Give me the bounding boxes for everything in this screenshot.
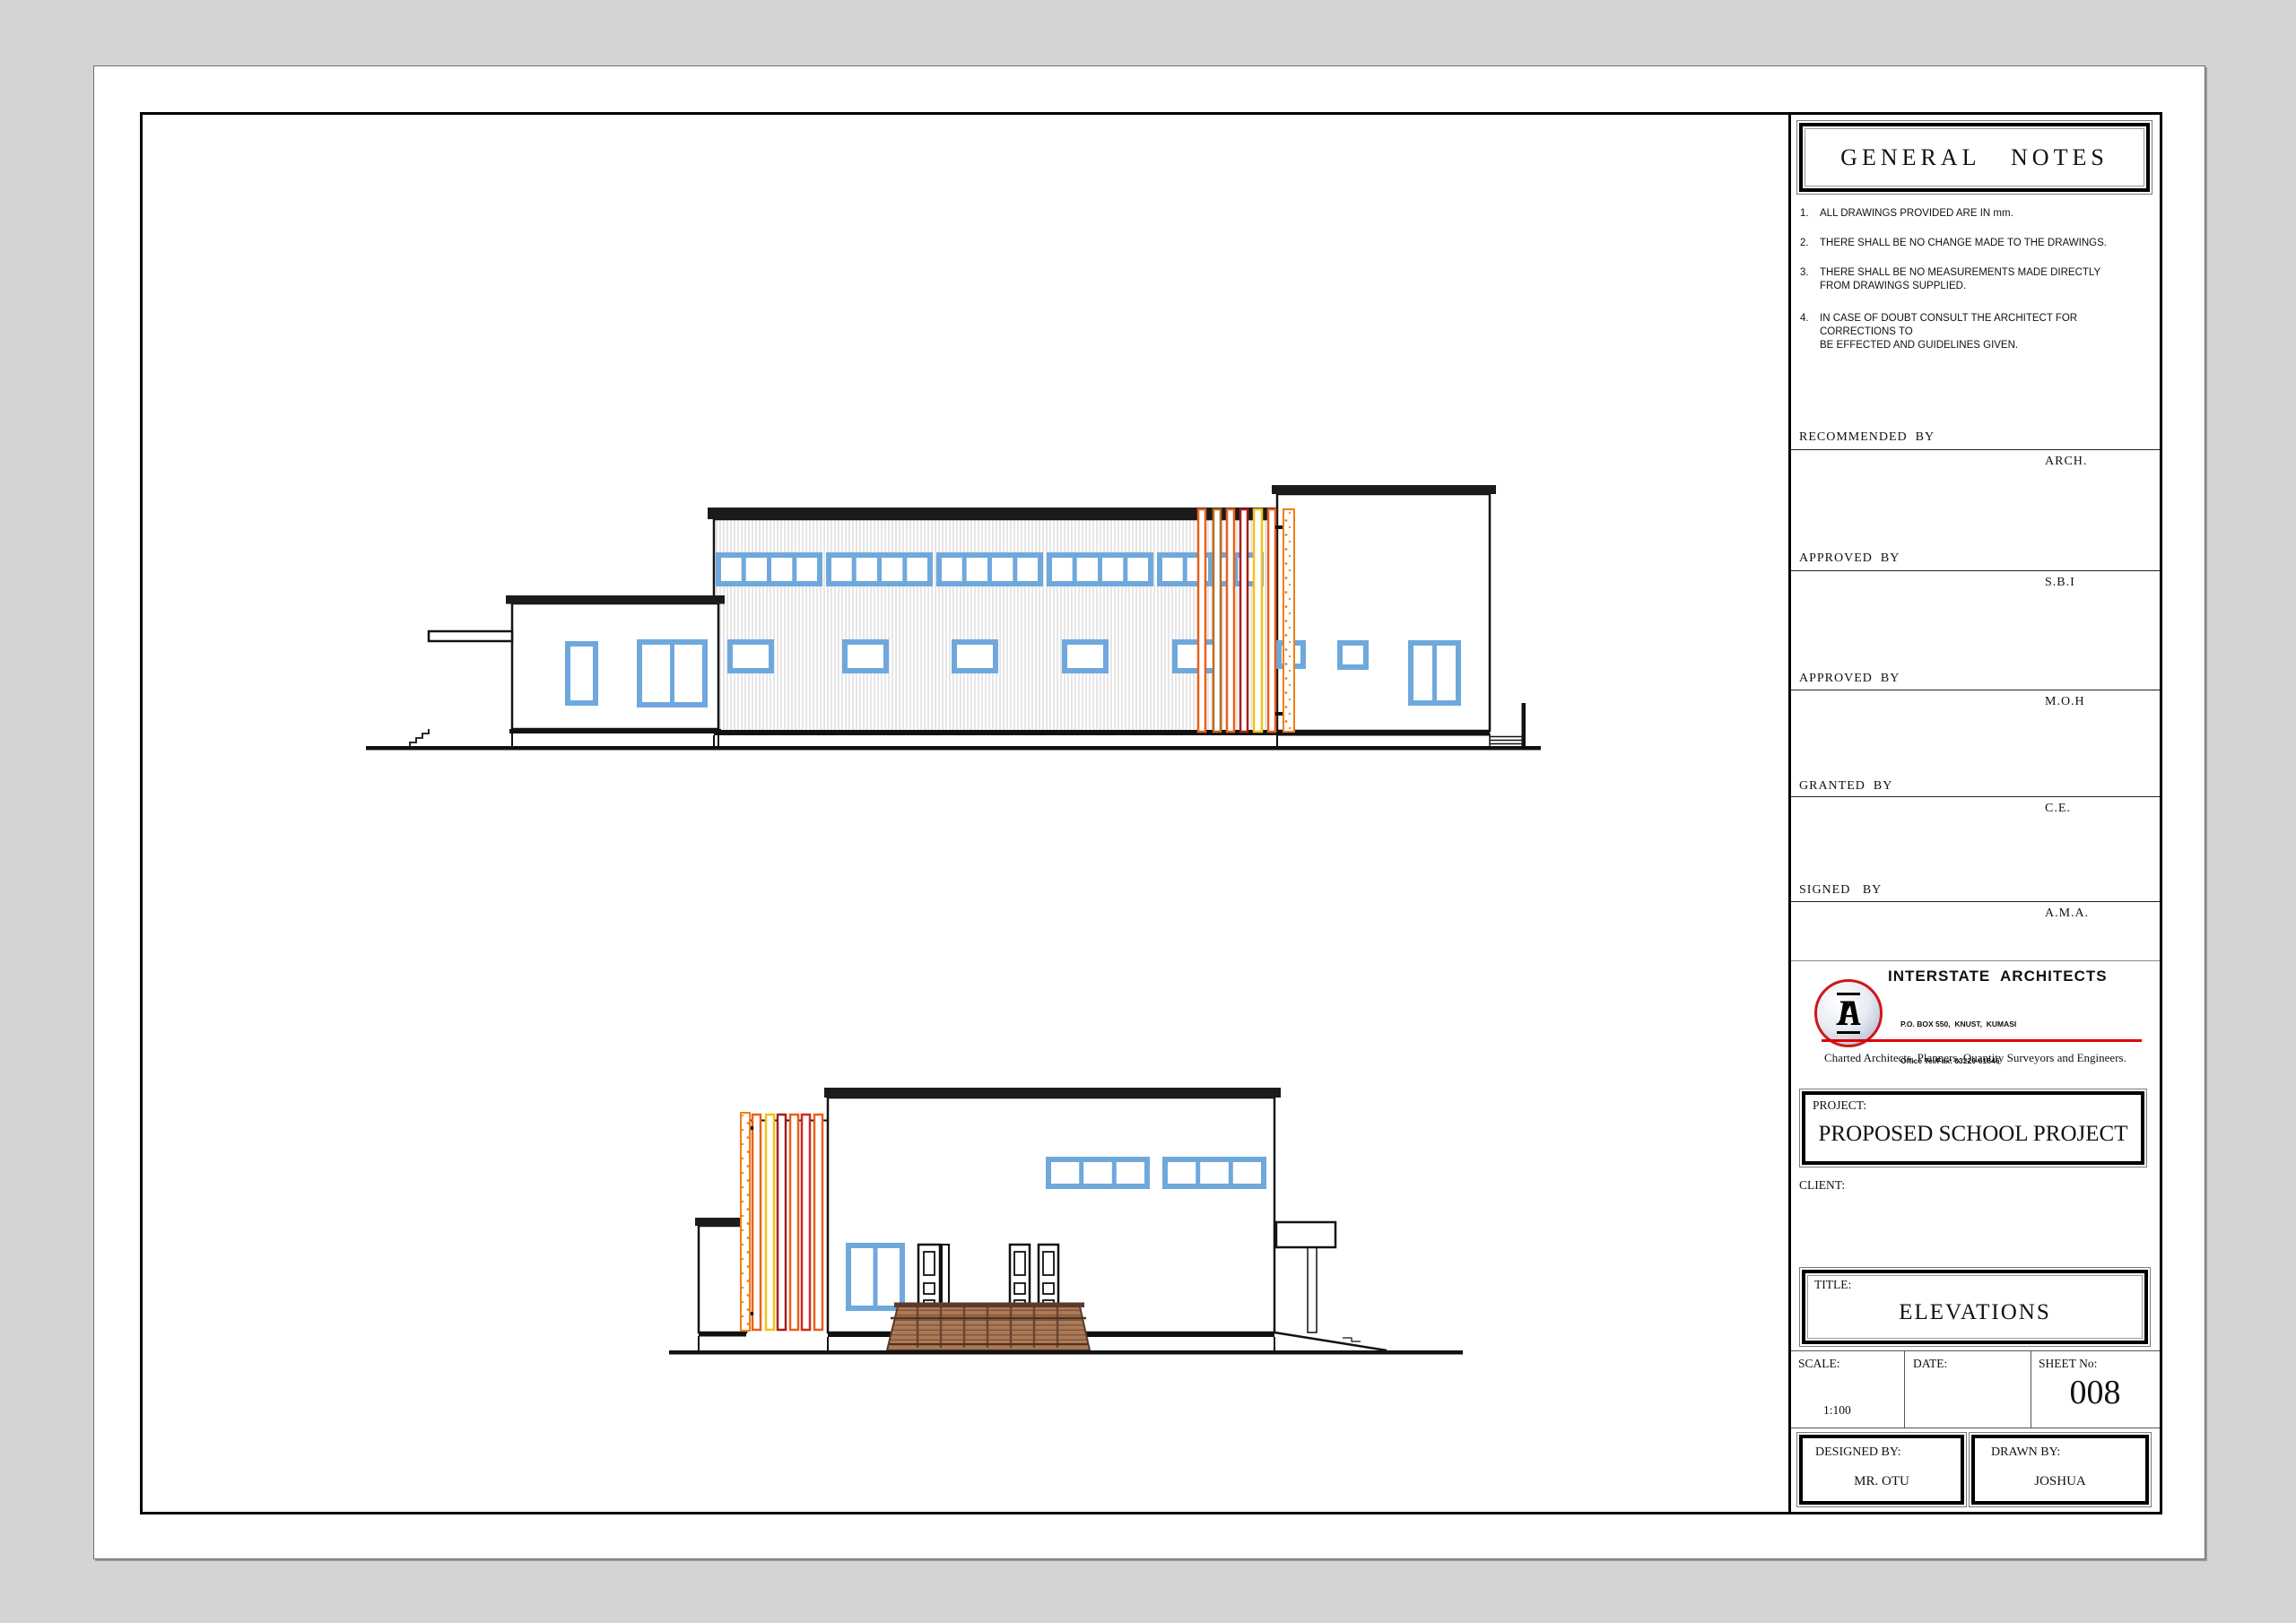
- front-elevation-drawing: [665, 1075, 1570, 1364]
- sheet-no-value: 008: [2031, 1373, 2160, 1412]
- date-label: DATE:: [1913, 1357, 1947, 1371]
- signature-label: RECOMMENDED BY: [1799, 430, 1935, 445]
- right-window-small: [1340, 643, 1366, 667]
- side-elevation-drawing: [360, 474, 1552, 761]
- right-block-plinth: [1277, 731, 1490, 736]
- clerestory-windows: [718, 555, 1261, 584]
- note-item: 2. THERE SHALL BE NO CHANGE MADE TO THE …: [1800, 237, 2152, 250]
- signature-designation: C.E.: [2045, 802, 2071, 816]
- signature-label: SIGNED BY: [1799, 883, 1882, 898]
- signature-label: GRANTED BY: [1799, 779, 1892, 794]
- ground-line: [366, 746, 1541, 751]
- general-notes-box: GENERAL NOTES: [1799, 123, 2150, 192]
- designed-by-label: DESIGNED BY:: [1815, 1445, 1901, 1460]
- sheet-no-label: SHEET No:: [2039, 1357, 2097, 1371]
- signature-designation: S.B.I: [2045, 576, 2075, 590]
- speckled-fin: [1283, 509, 1294, 732]
- designed-by-value: MR. OTU: [1803, 1474, 1961, 1489]
- signature-label: APPROVED BY: [1799, 551, 1900, 566]
- firm-logo: IA: [1814, 979, 1883, 1047]
- drawn-by-label: DRAWN BY:: [1991, 1445, 2060, 1460]
- firm-logo-monogram: IA: [1837, 993, 1860, 1034]
- title-block: GENERAL NOTES 1. ALL DRAWINGS PROVIDED A…: [1788, 115, 2160, 1512]
- sheet-title-box: TITLE: ELEVATIONS: [1802, 1270, 2148, 1344]
- left-wing-roof: [506, 595, 725, 604]
- designed-by-box: DESIGNED BY: MR. OTU: [1799, 1435, 1964, 1505]
- drawn-by-box: DRAWN BY: JOSHUA: [1971, 1435, 2149, 1505]
- client-label: CLIENT:: [1799, 1178, 1845, 1193]
- signature-designation: M.O.H: [2045, 695, 2085, 709]
- ground-line: [669, 1350, 1463, 1355]
- scale-value: 1:100: [1823, 1403, 1851, 1418]
- right-canopy: [1276, 1222, 1335, 1332]
- low-wing-wall: [699, 1226, 746, 1332]
- left-canopy-ledge: [429, 631, 512, 641]
- louver-fins: [752, 1115, 822, 1330]
- signature-label: APPROVED BY: [1799, 672, 1900, 686]
- speckled-fin: [741, 1113, 750, 1331]
- main-facade-roof: [824, 1088, 1281, 1098]
- ramp-slope: [1274, 1332, 1387, 1350]
- drawn-by-value: JOSHUA: [1975, 1474, 2145, 1489]
- timber-deck: [887, 1303, 1090, 1351]
- right-block-roof: [1272, 485, 1496, 494]
- project-value: PROPOSED SCHOOL PROJECT: [1805, 1122, 2141, 1147]
- project-box: PROJECT: PROPOSED SCHOOL PROJECT: [1802, 1091, 2144, 1165]
- paper-sheet: GENERAL NOTES 1. ALL DRAWINGS PROVIDED A…: [93, 65, 2205, 1559]
- main-block-roof: [708, 508, 1278, 519]
- firm-name: INTERSTATE ARCHITECTS: [1888, 968, 2108, 985]
- scale-date-sheet-row: SCALE: 1:100 DATE: SHEET No: 008: [1791, 1350, 2160, 1428]
- left-steps: [410, 729, 429, 747]
- signature-designation: A.M.A.: [2045, 907, 2089, 921]
- right-steps: [1490, 703, 1526, 748]
- sheet-title-label: TITLE:: [1814, 1278, 1851, 1292]
- note-item: 4. IN CASE OF DOUBT CONSULT THE ARCHITEC…: [1800, 312, 2152, 352]
- left-wing-window-narrow: [568, 644, 596, 703]
- main-block-wall: [714, 519, 1277, 732]
- firm-red-rule: [1822, 1039, 2142, 1042]
- note-item: 1. ALL DRAWINGS PROVIDED ARE IN mm.: [1800, 207, 2152, 221]
- project-label: PROJECT:: [1813, 1098, 1866, 1113]
- note-item: 3. THERE SHALL BE NO MEASUREMENTS MADE D…: [1800, 266, 2152, 293]
- left-wing-plinth: [509, 729, 721, 733]
- architectural-drawing-sheet: GENERAL NOTES 1. ALL DRAWINGS PROVIDED A…: [0, 0, 2296, 1623]
- scale-label: SCALE:: [1798, 1357, 1840, 1371]
- sheet-title-value: ELEVATIONS: [1805, 1300, 2144, 1325]
- signature-designation: ARCH.: [2045, 455, 2087, 469]
- drawing-border-frame: GENERAL NOTES 1. ALL DRAWINGS PROVIDED A…: [140, 112, 2162, 1515]
- main-block-plinth: [714, 730, 1277, 735]
- firm-tagline: Charted Architects, Planners, Quantity S…: [1824, 1051, 2126, 1065]
